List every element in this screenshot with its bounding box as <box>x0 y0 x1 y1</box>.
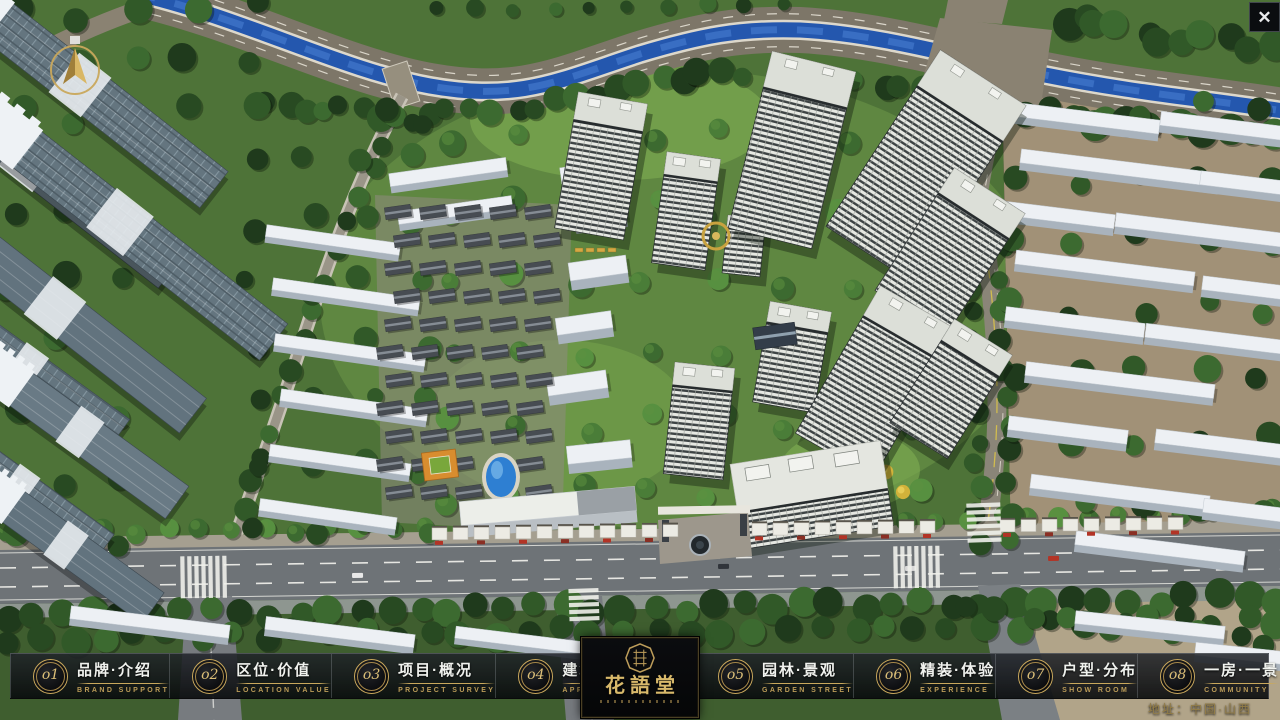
nav-label-en: BRAND SUPPORT <box>77 687 169 694</box>
gold-divider <box>77 683 169 684</box>
brand-seal-icon <box>625 643 655 673</box>
gold-divider <box>920 683 995 684</box>
nav-badge-05: o5 <box>718 659 753 694</box>
nav-label-zh: 一房·一景 <box>1204 659 1279 680</box>
gold-divider <box>236 683 331 684</box>
nav-badge-06: o6 <box>876 659 911 694</box>
close-icon: ✕ <box>1257 9 1271 26</box>
close-button[interactable]: ✕ <box>1249 2 1280 32</box>
compass-icon <box>46 36 104 98</box>
nav-label-en: SHOW ROOM <box>1062 687 1137 694</box>
nav-item-interior[interactable]: o6 精装·体验EXPERIENCE <box>853 654 995 698</box>
nav-item-floorplans[interactable]: o7 户型·分布SHOW ROOM <box>995 654 1137 698</box>
nav-badge-07: o7 <box>1018 659 1053 694</box>
nav-item-brand[interactable]: o1 品牌·介绍BRAND SUPPORT <box>10 654 169 698</box>
nav-label-en: EXPERIENCE <box>920 687 995 694</box>
gold-divider <box>1204 683 1279 684</box>
nav-label-en: COMMUNITY <box>1204 687 1279 694</box>
nav-item-location[interactable]: o2 区位·价值LOCATION VALUE <box>169 654 331 698</box>
nav-label-zh: 区位·价值 <box>236 659 331 680</box>
app-window: ✕ o1 品牌·介绍BRAND SUPPORT o2 区位·价值LOCATION… <box>0 0 1280 720</box>
nav-label-en: LOCATION VALUE <box>236 687 331 694</box>
nav-badge-01: o1 <box>33 659 68 694</box>
gold-divider <box>762 683 853 684</box>
brand-panel[interactable]: 花語堂 <box>581 637 699 718</box>
brand-subtitle-decor <box>600 700 680 703</box>
address-text: 地址：中国·山西 <box>1148 700 1252 717</box>
masterplan-render <box>0 0 1280 720</box>
nav-badge-04: o4 <box>518 659 553 694</box>
nav-bar-left: o1 品牌·介绍BRAND SUPPORT o2 区位·价值LOCATION V… <box>10 653 582 699</box>
nav-label-en: GARDEN STREET <box>762 687 853 694</box>
nav-label-zh: 精装·体验 <box>920 659 995 680</box>
nav-badge-08: o8 <box>1160 659 1195 694</box>
nav-item-views[interactable]: o8 一房·一景COMMUNITY <box>1137 654 1279 698</box>
nav-label-zh: 项目·概况 <box>398 659 495 680</box>
nav-label-en: PROJECT SURVEY <box>398 687 495 694</box>
gold-divider <box>398 683 495 684</box>
nav-item-project[interactable]: o3 项目·概况PROJECT SURVEY <box>331 654 495 698</box>
nav-label-zh: 品牌·介绍 <box>77 659 169 680</box>
nav-badge-02: o2 <box>192 659 227 694</box>
brand-title: 花語堂 <box>600 675 680 695</box>
nav-bar-right: o5 园林·景观GARDEN STREET o6 精装·体验EXPERIENCE… <box>695 653 1269 699</box>
nav-badge-03: o3 <box>354 659 389 694</box>
nav-item-garden[interactable]: o5 园林·景观GARDEN STREET <box>695 654 853 698</box>
nav-label-zh: 户型·分布 <box>1062 659 1137 680</box>
gold-divider <box>1062 683 1137 684</box>
nav-label-zh: 园林·景观 <box>762 659 853 680</box>
